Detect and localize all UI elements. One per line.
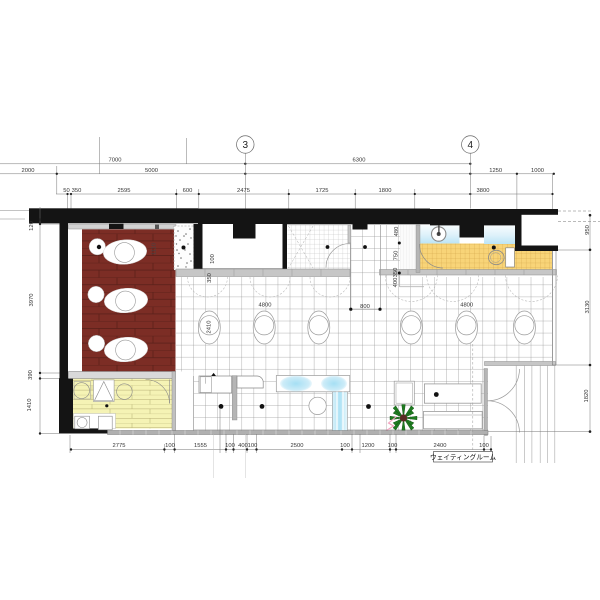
svg-text:350: 350 xyxy=(72,188,82,194)
svg-text:100: 100 xyxy=(479,443,489,449)
svg-text:350: 350 xyxy=(207,273,213,283)
svg-text:1820: 1820 xyxy=(584,390,590,403)
svg-text:100: 100 xyxy=(388,443,398,449)
svg-text:1800: 1800 xyxy=(379,188,392,194)
svg-text:480: 480 xyxy=(394,227,400,237)
svg-text:4800: 4800 xyxy=(259,303,272,309)
svg-text:750: 750 xyxy=(394,251,400,261)
svg-text:3800: 3800 xyxy=(477,188,490,194)
svg-text:800: 800 xyxy=(360,304,370,310)
svg-text:1110: 1110 xyxy=(152,243,158,255)
svg-text:7000: 7000 xyxy=(109,157,122,163)
svg-text:600: 600 xyxy=(183,188,193,194)
svg-text:1200: 1200 xyxy=(362,443,375,449)
svg-text:3970: 3970 xyxy=(29,294,35,307)
svg-text:2775: 2775 xyxy=(113,443,126,449)
svg-text:3130: 3130 xyxy=(585,301,591,314)
svg-text:2410: 2410 xyxy=(207,321,213,334)
svg-text:1725: 1725 xyxy=(316,188,329,194)
svg-text:350: 350 xyxy=(393,268,399,278)
svg-text:1410: 1410 xyxy=(27,399,33,412)
svg-text:2400: 2400 xyxy=(434,443,447,449)
svg-text:100: 100 xyxy=(165,443,175,449)
svg-text:ウェイティングルーム: ウェイティングルーム xyxy=(430,452,496,461)
svg-text:1000: 1000 xyxy=(531,168,544,174)
svg-text:3: 3 xyxy=(243,140,249,151)
svg-text:5000: 5000 xyxy=(145,168,158,174)
svg-text:100: 100 xyxy=(210,254,216,264)
svg-text:400: 400 xyxy=(393,278,399,288)
svg-text:120: 120 xyxy=(29,221,35,231)
svg-text:6300: 6300 xyxy=(353,157,366,163)
svg-text:4: 4 xyxy=(468,140,474,151)
svg-text:100: 100 xyxy=(340,443,350,449)
svg-text:1250: 1250 xyxy=(489,168,502,174)
svg-text:2000: 2000 xyxy=(22,168,35,174)
svg-text:100: 100 xyxy=(225,443,235,449)
svg-text:950: 950 xyxy=(585,225,591,235)
svg-text:2500: 2500 xyxy=(291,443,304,449)
svg-text:2475: 2475 xyxy=(237,188,250,194)
svg-text:2595: 2595 xyxy=(118,188,131,194)
svg-text:400: 400 xyxy=(238,443,248,449)
svg-text:4800: 4800 xyxy=(460,303,473,309)
svg-text:1555: 1555 xyxy=(194,443,207,449)
svg-text:50: 50 xyxy=(63,188,69,194)
svg-text:100: 100 xyxy=(248,443,258,449)
svg-text:390: 390 xyxy=(28,370,34,380)
